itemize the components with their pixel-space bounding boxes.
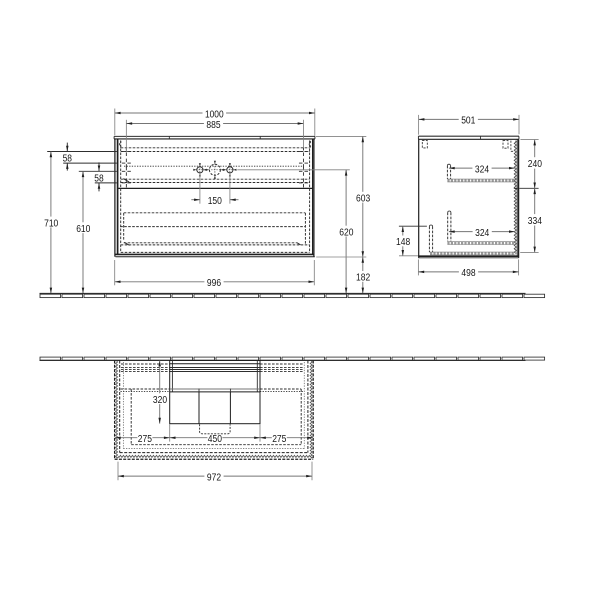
svg-text:1000: 1000 — [205, 109, 224, 120]
svg-text:334: 334 — [528, 216, 543, 227]
svg-text:501: 501 — [461, 116, 476, 127]
svg-text:148: 148 — [396, 237, 411, 248]
svg-text:58: 58 — [63, 153, 73, 164]
svg-text:972: 972 — [207, 472, 222, 483]
svg-text:275: 275 — [272, 434, 287, 445]
svg-text:603: 603 — [356, 193, 371, 204]
svg-text:450: 450 — [208, 434, 223, 445]
svg-text:320: 320 — [153, 395, 168, 406]
svg-text:150: 150 — [208, 196, 223, 207]
svg-text:620: 620 — [339, 227, 354, 238]
svg-text:610: 610 — [76, 224, 91, 235]
svg-text:240: 240 — [528, 159, 543, 170]
svg-text:498: 498 — [461, 268, 476, 279]
svg-text:710: 710 — [44, 218, 59, 229]
svg-text:58: 58 — [94, 173, 104, 184]
svg-text:996: 996 — [207, 278, 222, 289]
svg-text:182: 182 — [356, 273, 371, 284]
svg-text:324: 324 — [475, 164, 490, 175]
svg-text:324: 324 — [475, 228, 490, 239]
svg-text:885: 885 — [206, 120, 221, 131]
svg-text:275: 275 — [138, 434, 153, 445]
